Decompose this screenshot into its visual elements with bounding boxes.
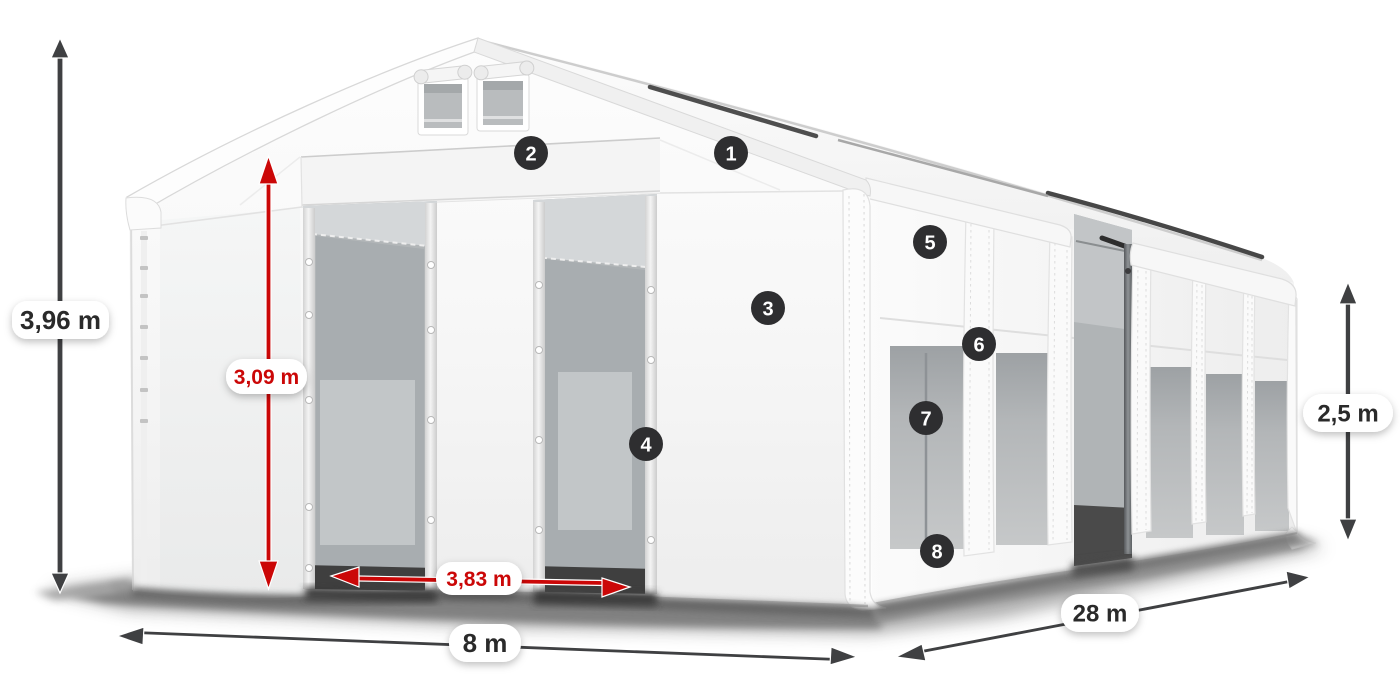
svg-text:8 m: 8 m xyxy=(463,628,508,658)
svg-text:28 m: 28 m xyxy=(1073,601,1128,628)
svg-text:3,09 m: 3,09 m xyxy=(234,366,299,389)
svg-text:2,5 m: 2,5 m xyxy=(1317,401,1378,428)
svg-text:6: 6 xyxy=(973,335,984,357)
svg-text:7: 7 xyxy=(920,409,931,431)
svg-text:3: 3 xyxy=(762,299,773,321)
svg-text:3,96 m: 3,96 m xyxy=(20,305,101,335)
svg-text:8: 8 xyxy=(931,542,942,564)
svg-text:3,83 m: 3,83 m xyxy=(446,568,511,591)
svg-text:5: 5 xyxy=(924,233,935,255)
svg-text:1: 1 xyxy=(725,144,736,166)
svg-text:4: 4 xyxy=(640,435,652,457)
svg-text:2: 2 xyxy=(525,144,536,166)
